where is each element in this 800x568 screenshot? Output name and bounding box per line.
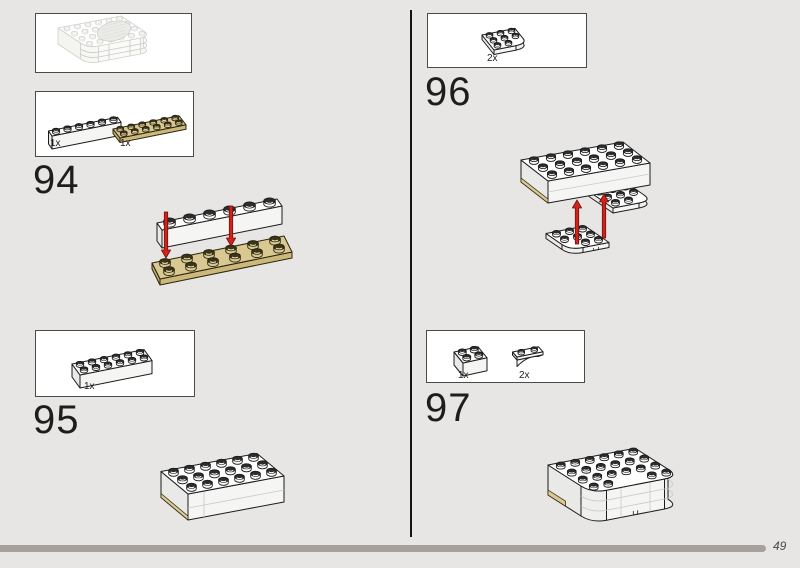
parts-box-step-95: 1x	[35, 330, 195, 397]
parts-box-step-96: 2x	[427, 13, 587, 68]
part-image-arch-1x3-white	[507, 339, 561, 375]
step-number-94: 94	[33, 160, 80, 200]
parts-box-step-94: 1x1x	[35, 91, 194, 157]
model-preview-ghost-image	[36, 14, 189, 70]
part-count: 1x	[120, 139, 131, 149]
step-97-assembly-figure	[538, 432, 693, 540]
step-94-assembly-figure	[150, 186, 328, 298]
part-count: 1x	[458, 371, 469, 381]
parts-box-step-97: 1x2x	[426, 330, 585, 383]
part-image-brick-2x2-white	[449, 333, 499, 379]
page-number: 49	[773, 539, 786, 553]
progress-bar	[0, 545, 766, 552]
part-count: 1x	[84, 382, 95, 392]
step-95-assembly-figure	[150, 438, 300, 530]
part-image-brick-2x6-white	[64, 335, 168, 393]
part-count: 2x	[519, 371, 530, 381]
part-count: 2x	[487, 54, 498, 64]
step-number-97: 97	[425, 388, 472, 428]
part-count: 1x	[50, 139, 61, 149]
step-number-96: 96	[425, 72, 472, 112]
step-96-assembly-figure	[492, 136, 697, 288]
step-number-95: 95	[33, 400, 80, 440]
model-preview-box	[35, 13, 192, 73]
column-divider	[410, 10, 412, 537]
